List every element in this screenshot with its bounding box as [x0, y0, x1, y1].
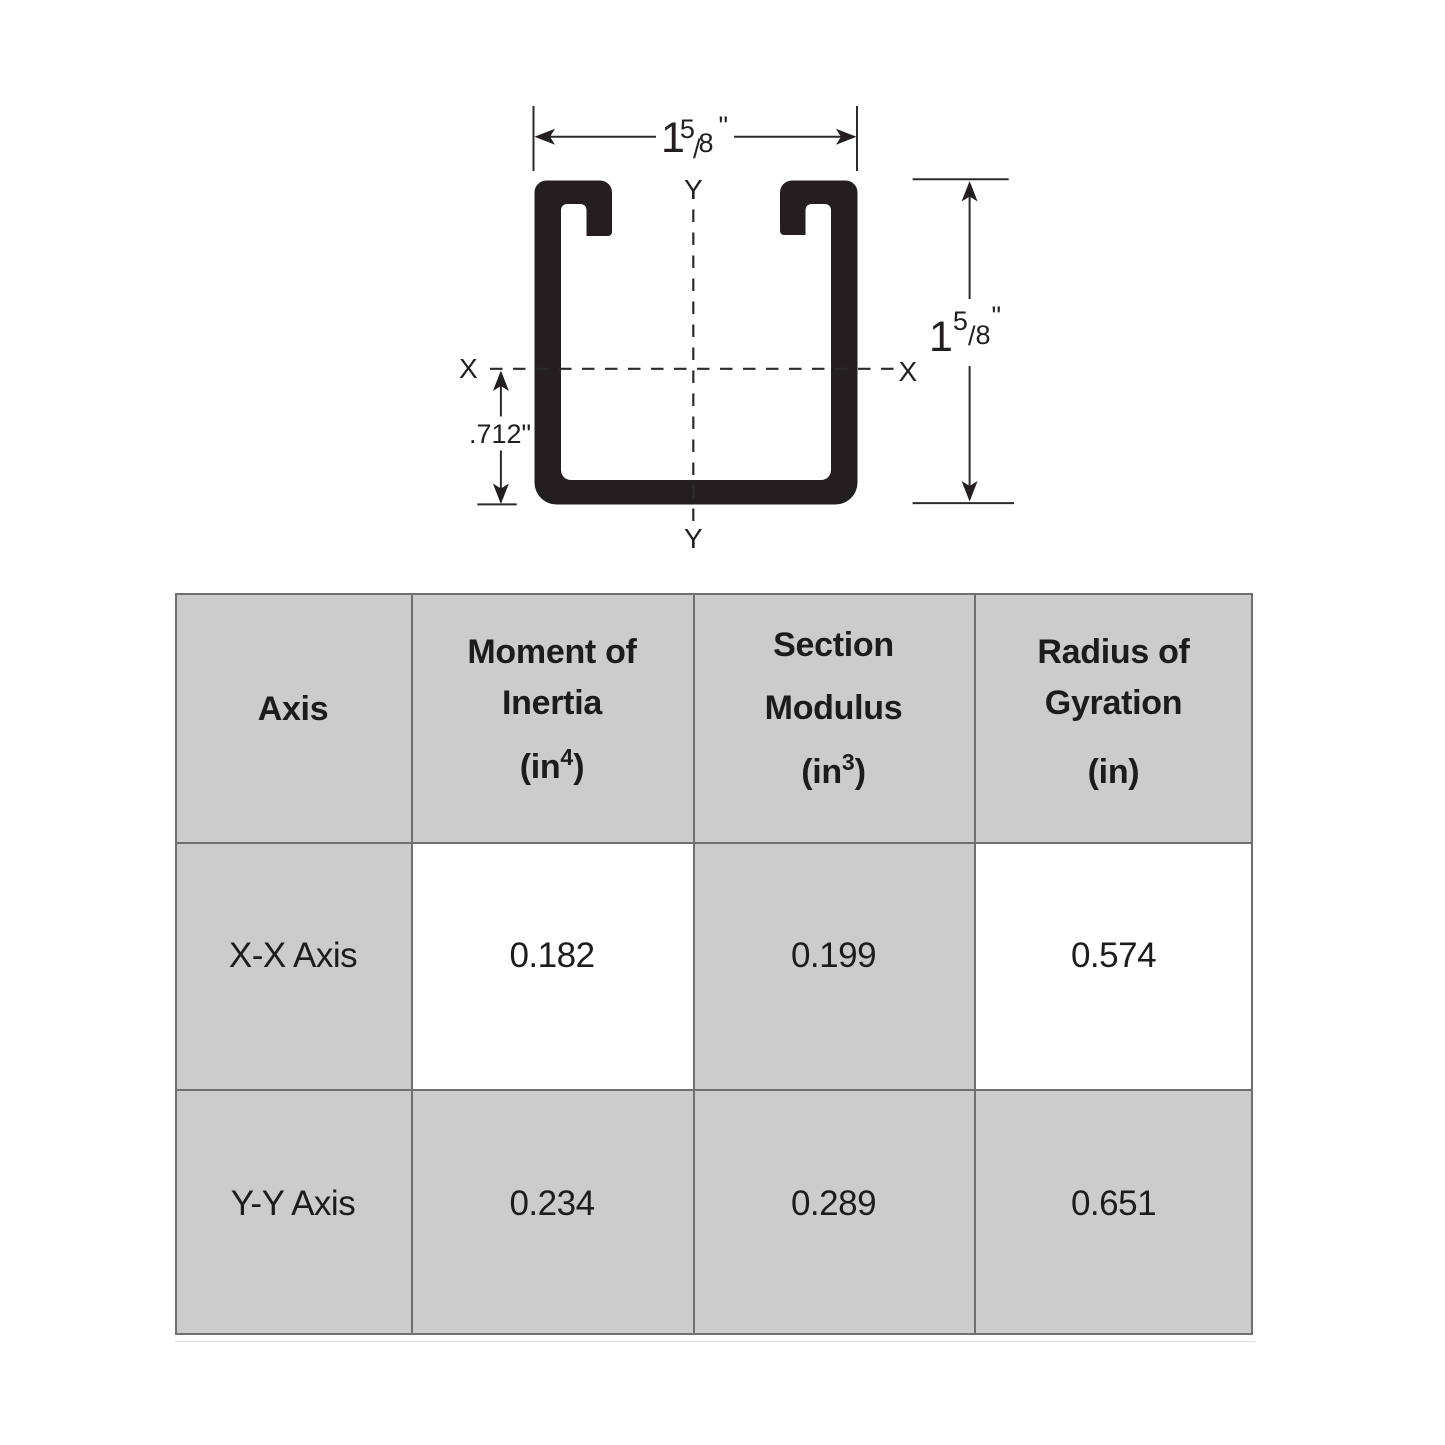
- svg-text:Y: Y: [684, 174, 703, 205]
- svg-text:X: X: [459, 353, 478, 384]
- svg-text:.712": .712": [469, 419, 531, 449]
- svg-text:X: X: [899, 356, 918, 387]
- svg-text:15/8": 15/8": [661, 111, 728, 164]
- svg-text:Y: Y: [684, 523, 703, 554]
- svg-text:15/8": 15/8": [929, 301, 1001, 361]
